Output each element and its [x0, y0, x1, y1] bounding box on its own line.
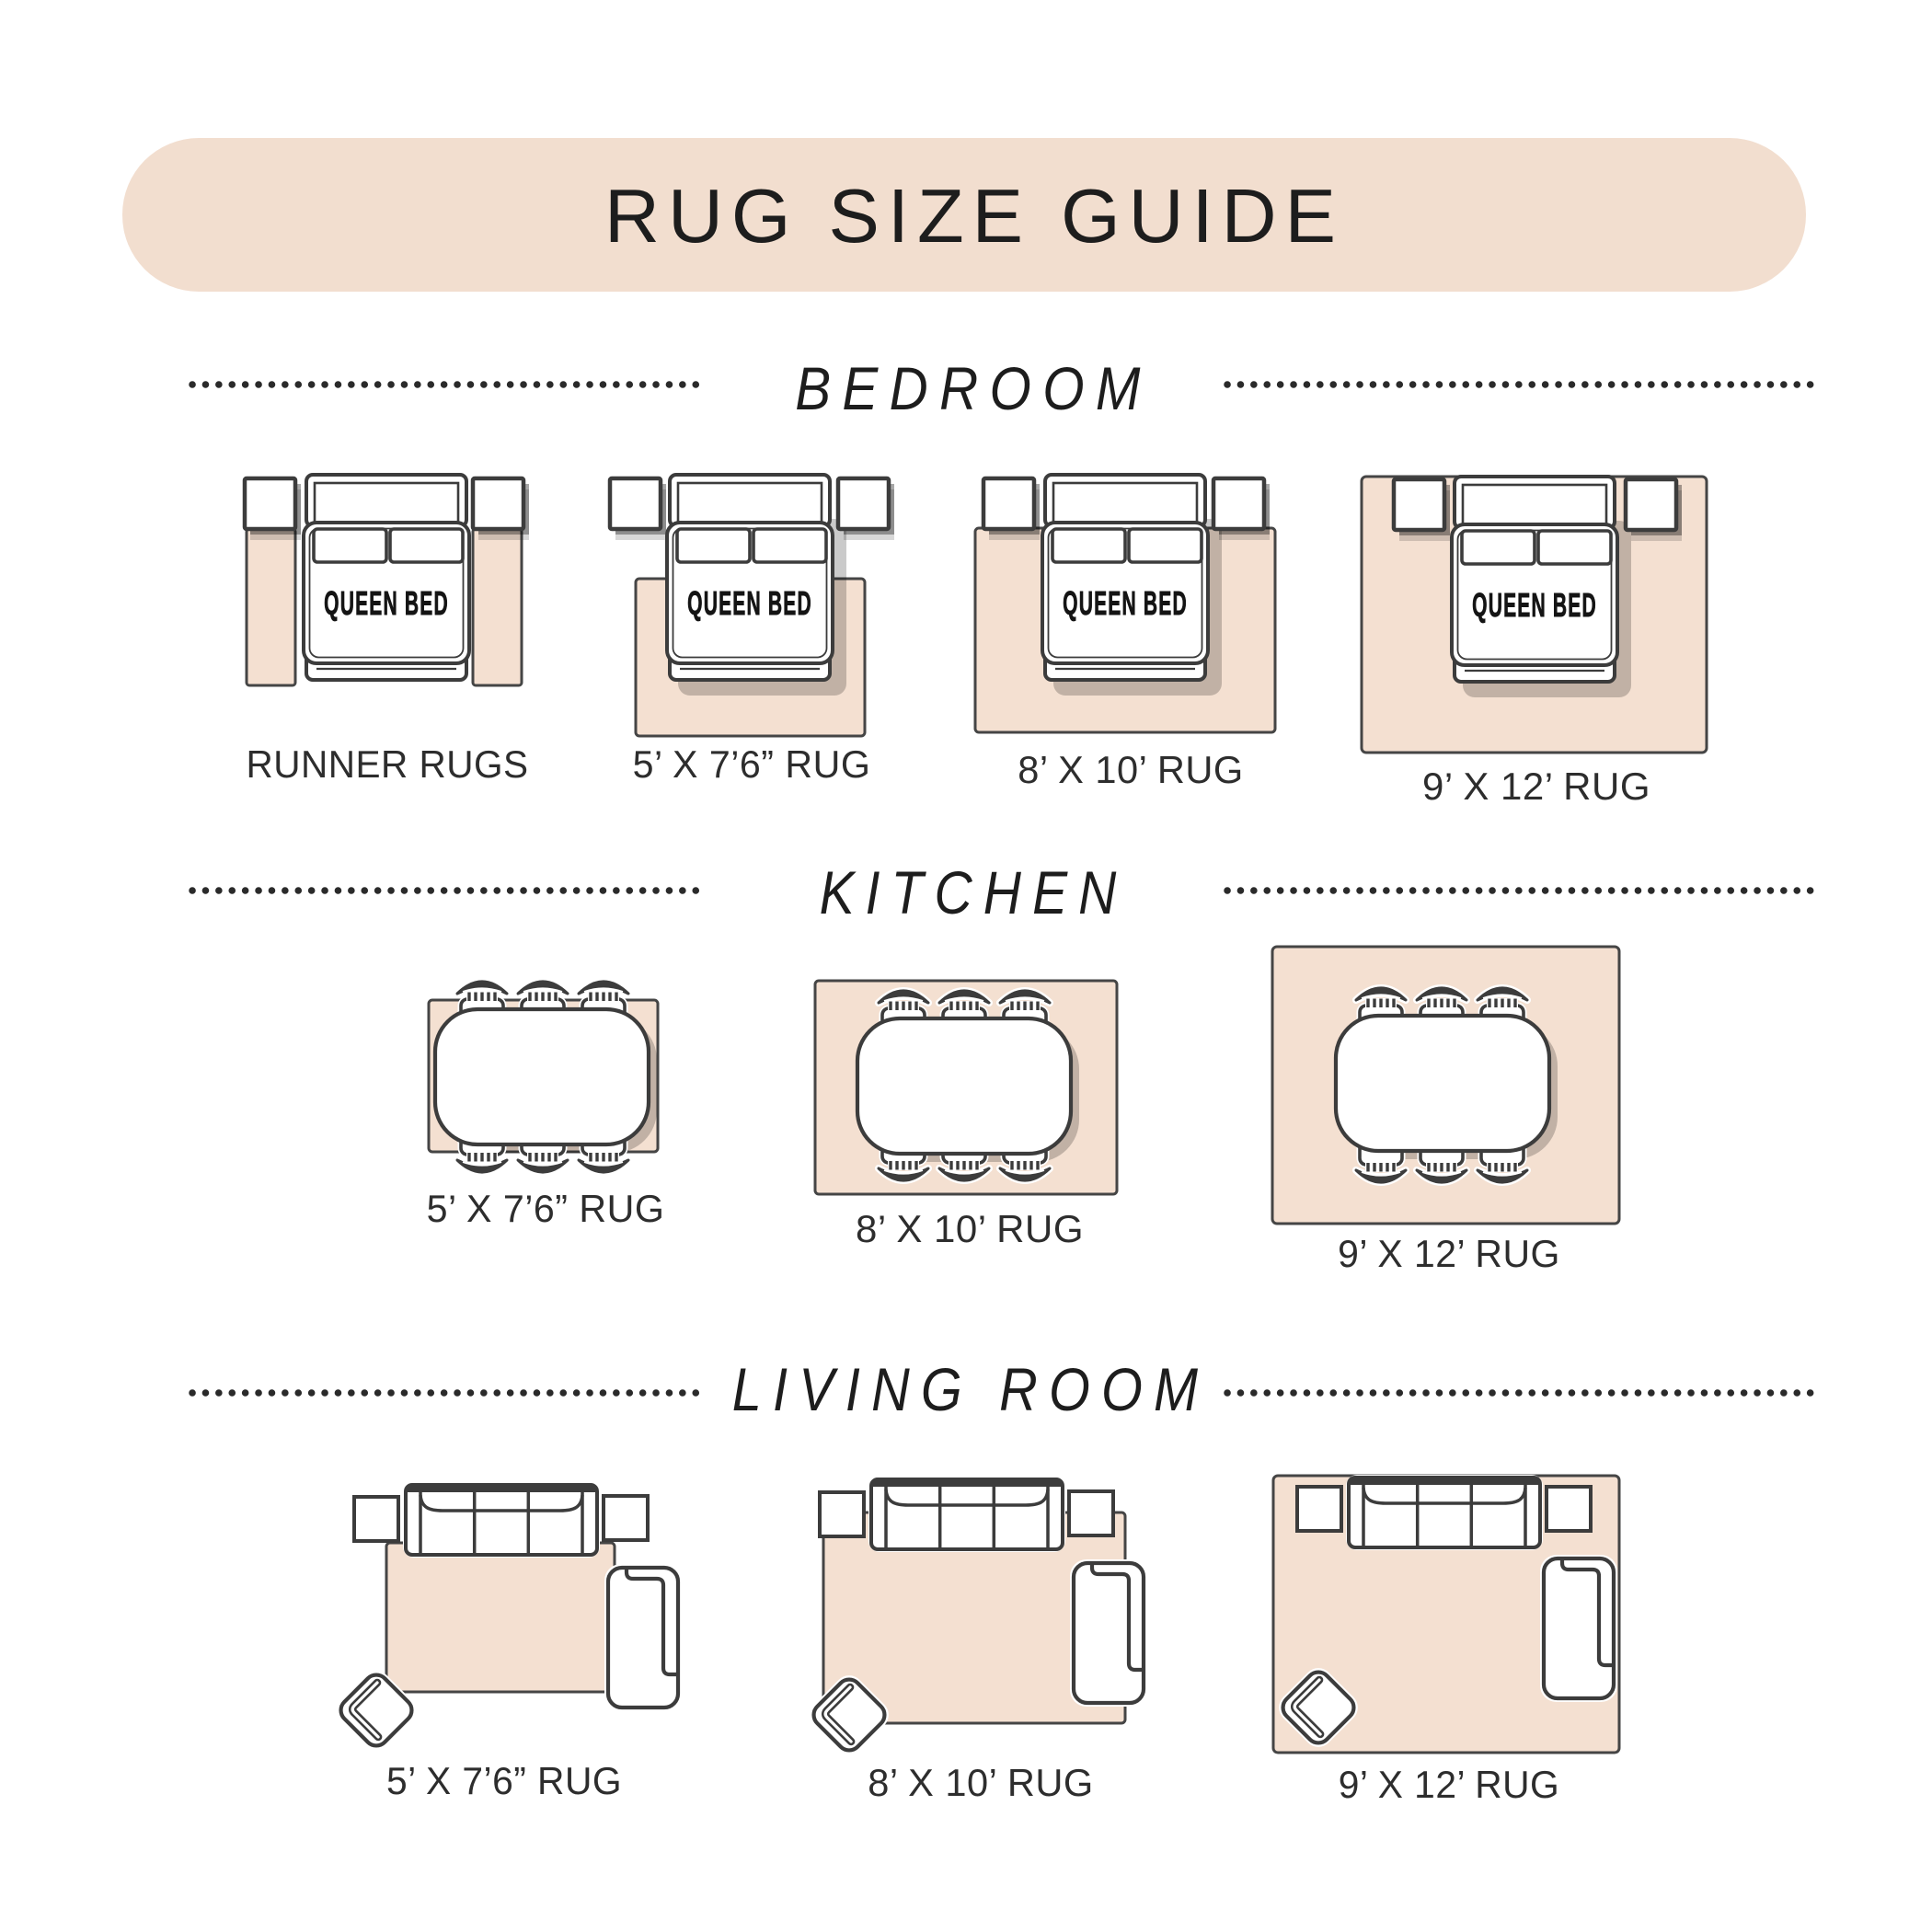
svg-text:QUEEN BED: QUEEN BED [1063, 585, 1188, 622]
svg-text:LIVING ROOM: LIVING ROOM [732, 1356, 1210, 1424]
svg-text:KITCHEN: KITCHEN [820, 859, 1128, 927]
svg-text:QUEEN BED: QUEEN BED [1472, 587, 1597, 624]
svg-text:5’ X 7’6” RUG: 5’ X 7’6” RUG [427, 1187, 665, 1230]
svg-text:RUNNER RUGS: RUNNER RUGS [246, 742, 528, 786]
svg-text:RUG SIZE GUIDE: RUG SIZE GUIDE [604, 173, 1344, 259]
svg-text:9’ X 12’ RUG: 9’ X 12’ RUG [1338, 1232, 1560, 1276]
svg-text:QUEEN BED: QUEEN BED [324, 585, 449, 622]
svg-text:5’ X 7’6” RUG: 5’ X 7’6” RUG [633, 742, 871, 786]
svg-text:8’ X 10’ RUG: 8’ X 10’ RUG [1018, 748, 1243, 791]
svg-text:5’ X 7’6” RUG: 5’ X 7’6” RUG [386, 1759, 622, 1802]
svg-text:QUEEN BED: QUEEN BED [687, 585, 812, 622]
svg-text:9’ X 12’ RUG: 9’ X 12’ RUG [1339, 1763, 1559, 1806]
svg-text:8’ X 10’ RUG: 8’ X 10’ RUG [856, 1207, 1084, 1250]
svg-text:BEDROOM: BEDROOM [795, 356, 1152, 423]
svg-text:9’ X 12’ RUG: 9’ X 12’ RUG [1422, 765, 1650, 808]
svg-text:8’ X 10’ RUG: 8’ X 10’ RUG [868, 1761, 1093, 1804]
